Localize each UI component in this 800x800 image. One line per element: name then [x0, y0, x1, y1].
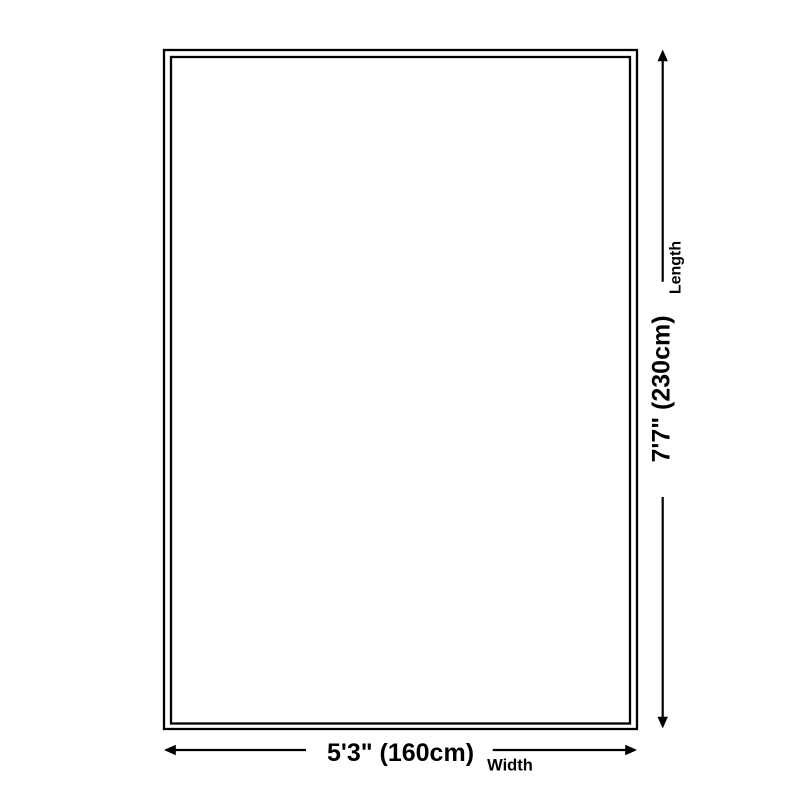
svg-text:Width: Width	[487, 757, 533, 775]
svg-text:Length: Length	[668, 241, 685, 294]
svg-text:7'7" (230cm): 7'7" (230cm)	[648, 315, 676, 462]
svg-text:5'3" (160cm): 5'3" (160cm)	[327, 739, 474, 767]
